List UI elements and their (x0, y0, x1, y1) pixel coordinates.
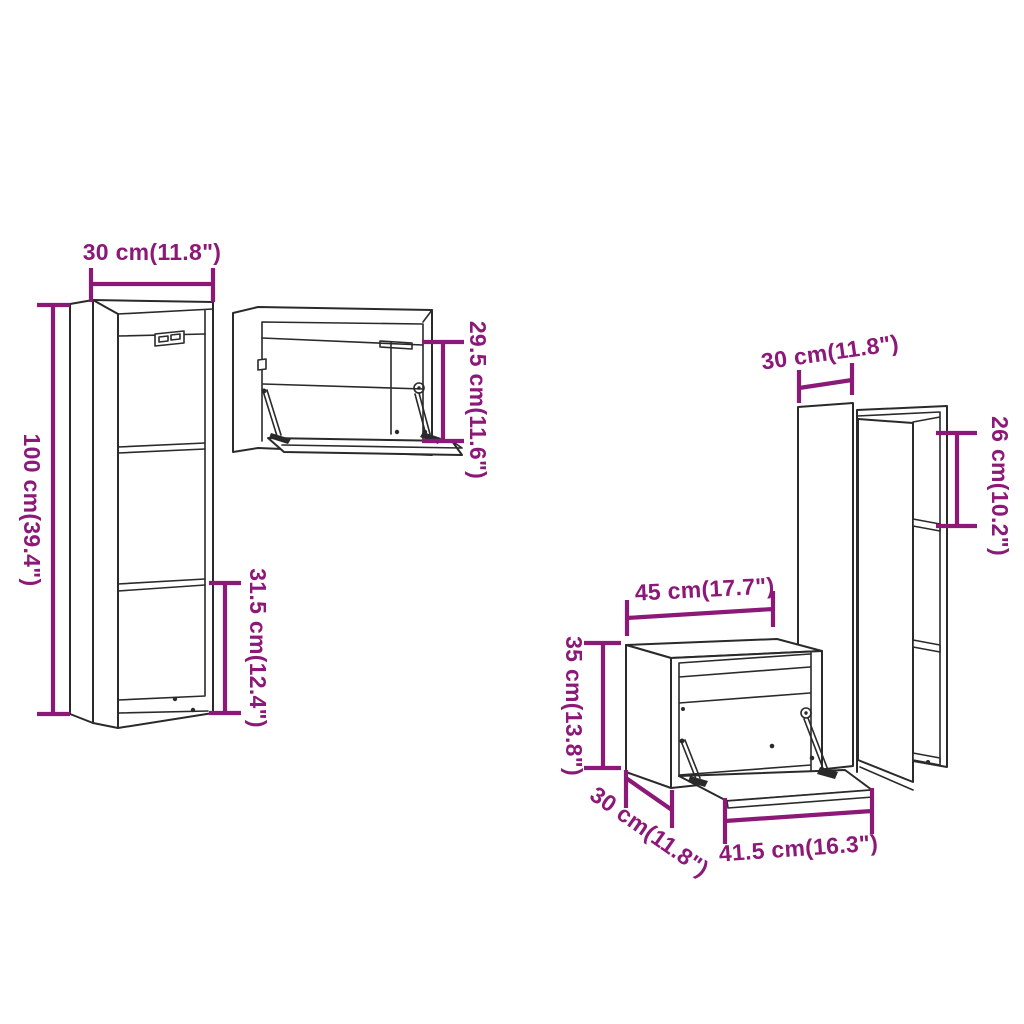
cabinet-tall-left (70, 300, 213, 728)
cabinet-horizontal (233, 307, 462, 455)
dim-cab4-height: 35 cm(13.8") (561, 636, 621, 776)
cab1-shelf-1 (118, 443, 205, 453)
cab1-open-door (70, 300, 93, 723)
cab3-shelf-1 (913, 519, 940, 531)
cab3-screw-dot (926, 760, 930, 764)
dim-cab4-width: 45 cm(17.7") (627, 572, 775, 636)
cab4-screw-dot-3 (810, 756, 815, 761)
cab4-screw-dot-2 (770, 744, 775, 749)
dim-label-cab3-shelf-spacing: 26 cm(10.2") (987, 416, 1013, 556)
cab2-stay-left (263, 390, 281, 436)
cab4-stay-left-pivot (680, 739, 685, 744)
cab4-screw-dot-1 (681, 707, 685, 711)
diagram-canvas: 30 cm(11.8") 100 cm(39.4") 31.5 cm(12.4"… (0, 0, 1024, 1024)
cab1-inner-frame (118, 309, 213, 713)
dim-cab4-depth: 30 cm(11.8") (585, 770, 713, 882)
cab2-stay-right-pin (417, 386, 420, 389)
cab2-stay-left-pivot (262, 389, 267, 394)
cab1-door-edges (93, 300, 118, 728)
cab3-open-door (858, 419, 913, 782)
dim-label-cab1-width: 30 cm(11.8") (83, 239, 222, 265)
cab1-shelf-2 (118, 579, 205, 591)
cab2-screw-dot-2 (423, 430, 427, 434)
dim-cab1-bottom-section: 31.5 cm(12.4") (209, 568, 271, 728)
cab1-screw-dot-1 (173, 697, 177, 701)
cab4-stay-right-pin (804, 711, 807, 714)
dim-label-cab4-flap-width: 41.5 cm(16.3") (718, 829, 879, 866)
dim-cab1-width: 30 cm(11.8") (83, 239, 222, 302)
dim-label-cab4-width: 45 cm(17.7") (634, 572, 775, 605)
dim-cab3-width: 30 cm(11.8") (759, 330, 900, 403)
dim-label-cab1-bottom-section: 31.5 cm(12.4") (245, 568, 271, 728)
cab1-screw-dot-2 (191, 708, 195, 712)
dim-label-cab3-width: 30 cm(11.8") (759, 330, 900, 375)
dim-label-cab4-height: 35 cm(13.8") (561, 636, 587, 776)
dim-line (91, 268, 213, 302)
cab2-wall-latch (258, 359, 266, 370)
dim-line (936, 433, 977, 526)
dim-label-cab2-door-height: 29.5 cm(11.6") (465, 321, 491, 479)
dim-line (584, 643, 621, 768)
cab2-outline (233, 307, 432, 455)
cab4-side-panel (626, 645, 671, 788)
cab2-back-seam (263, 342, 423, 434)
dimension-diagram: 30 cm(11.8") 100 cm(39.4") 31.5 cm(12.4"… (0, 0, 1024, 1024)
cab3-shelf-2 (913, 640, 940, 652)
cab1-outline (93, 300, 213, 728)
dim-cab1-height: 100 cm(39.4") (19, 305, 70, 714)
cab2-screw-dot-1 (395, 430, 399, 434)
cab2-inner-frame (262, 310, 432, 443)
dim-line (799, 363, 852, 403)
dim-label-cab1-height: 100 cm(39.4") (19, 434, 45, 587)
